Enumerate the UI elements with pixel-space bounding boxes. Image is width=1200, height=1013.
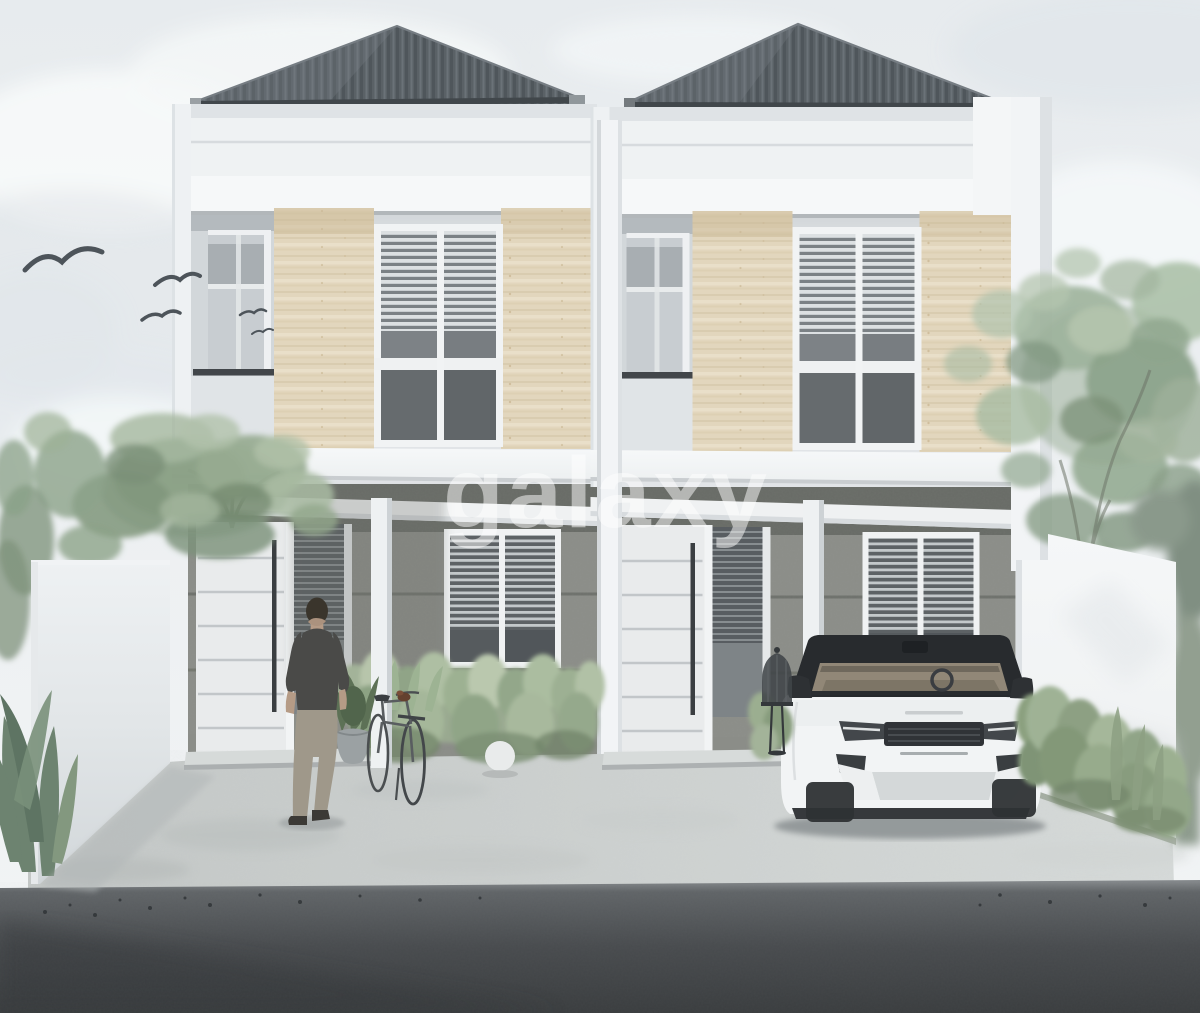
svg-text:galaxy: galaxy (443, 437, 769, 549)
